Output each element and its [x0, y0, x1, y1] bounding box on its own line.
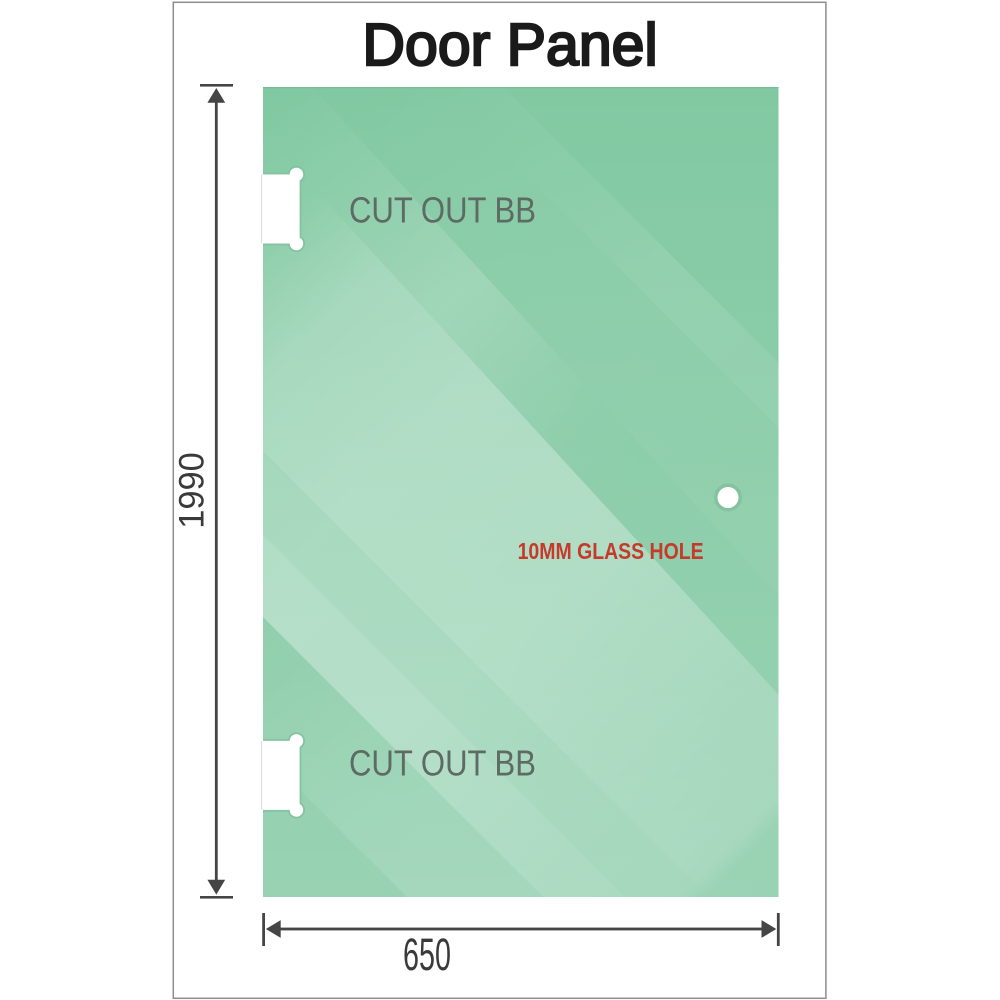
svg-text:1990: 1990: [172, 452, 211, 529]
svg-text:CUT OUT BB: CUT OUT BB: [349, 742, 536, 783]
svg-text:Door Panel: Door Panel: [362, 12, 657, 78]
svg-text:650: 650: [403, 929, 451, 980]
svg-text:10MM GLASS HOLE: 10MM GLASS HOLE: [518, 538, 704, 564]
svg-text:CUT OUT BB: CUT OUT BB: [349, 190, 536, 231]
